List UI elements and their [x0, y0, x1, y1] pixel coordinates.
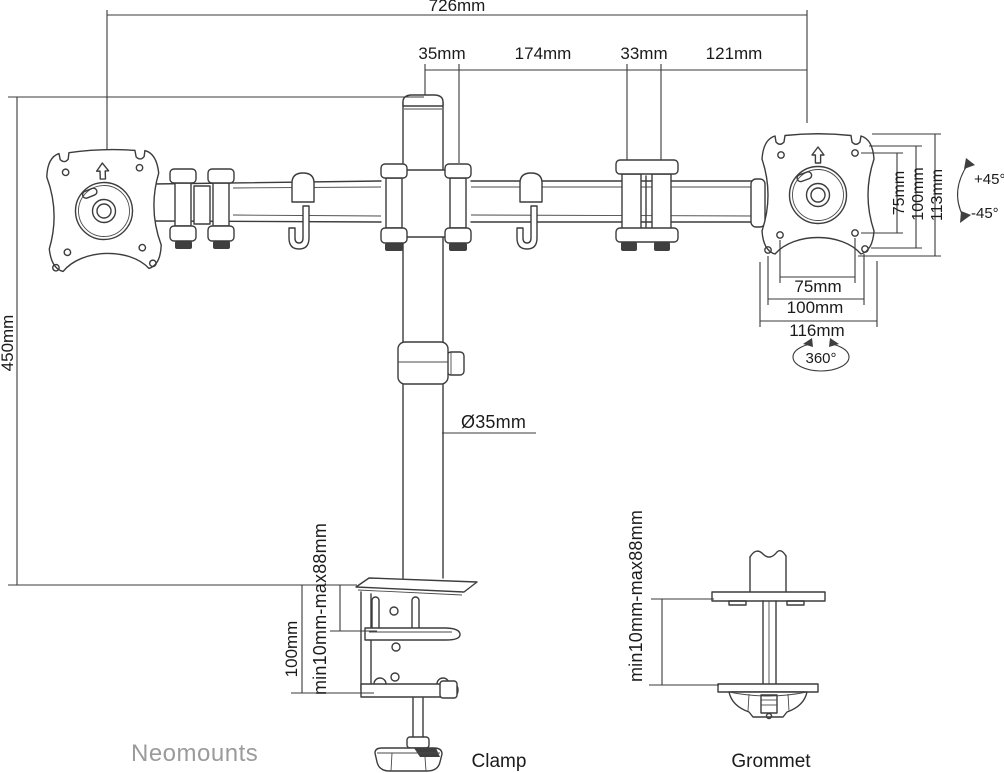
clamp-guide-pin	[412, 597, 419, 631]
dim-label-vesa-h-75mm: 75mm	[794, 277, 841, 296]
center-hub-joint	[381, 164, 471, 251]
left-vesa-plate	[46, 148, 162, 272]
diagram-canvas: 726mm 35mm 174mm 33mm 121mm 450mm Ø35mm …	[0, 0, 1004, 773]
dim-label-clamp-100mm: 100mm	[282, 621, 301, 678]
clamp-top-plate	[356, 578, 477, 592]
dimension-arm-segments: 35mm 174mm 33mm 121mm	[418, 44, 807, 163]
clamp-guide-pin	[372, 597, 379, 631]
grommet-mount	[712, 551, 825, 719]
dim-label-vesa-v-75mm: 75mm	[891, 171, 908, 215]
dim-label-swivel-360: 360°	[805, 350, 836, 367]
center-pole	[403, 95, 443, 578]
desk-clamp	[356, 578, 477, 771]
grommet-pole-cut	[750, 551, 786, 557]
dim-label-174mm: 174mm	[515, 44, 572, 63]
dim-label-vesa-h-116mm: 116mm	[789, 321, 844, 340]
caption-clamp: Clamp	[472, 751, 527, 772]
dim-label-vesa-v-113mm: 113mm	[929, 169, 946, 221]
tilt-arc	[958, 164, 968, 216]
brand-logo: Neomounts	[131, 740, 258, 767]
cable-clip-right	[517, 173, 542, 249]
dimension-grommet: min10mm-max88mm	[626, 510, 719, 685]
dim-label-grommet-range: min10mm-max88mm	[626, 510, 646, 682]
right-arm-tube	[471, 181, 755, 222]
right-vesa-plate	[762, 134, 874, 254]
left-arm-joint	[170, 169, 234, 249]
clamp-middle-shelf	[365, 628, 460, 640]
dim-label-vesa-h-100mm: 100mm	[787, 298, 844, 317]
dim-label-vesa-v-100mm: 100mm	[910, 167, 927, 220]
cable-clip-left	[289, 173, 314, 249]
dimension-top-total: 726mm	[107, 0, 807, 150]
dim-label-clamp-range: min10mm-max88mm	[310, 523, 330, 695]
grommet-top-plate	[712, 592, 825, 601]
dimension-pole-diameter: Ø35mm	[442, 412, 536, 433]
grommet-bottom-plate	[718, 684, 818, 692]
caption-grommet: Grommet	[731, 751, 811, 772]
tilt-indicator: +45° -45°	[958, 158, 1004, 223]
dim-label-35mm: 35mm	[418, 44, 465, 63]
pole-height-collar	[398, 342, 464, 384]
right-arm-joint	[616, 160, 678, 251]
dim-label-tilt-down: -45°	[971, 205, 999, 222]
dim-label-tilt-up: +45°	[974, 171, 1004, 188]
dim-label-121mm: 121mm	[706, 44, 763, 63]
dim-label-33mm: 33mm	[620, 44, 667, 63]
dim-label-450mm: 450mm	[0, 315, 17, 372]
dimension-clamp: 100mm min10mm-max88mm	[282, 523, 377, 695]
mount-diagram-svg: 726mm 35mm 174mm 33mm 121mm 450mm Ø35mm …	[0, 0, 1004, 773]
dim-label-726mm: 726mm	[429, 0, 486, 15]
right-plate-pivot	[751, 179, 765, 227]
dim-label-pole-diameter: Ø35mm	[461, 412, 526, 432]
swivel-indicator: 360°	[793, 338, 849, 371]
